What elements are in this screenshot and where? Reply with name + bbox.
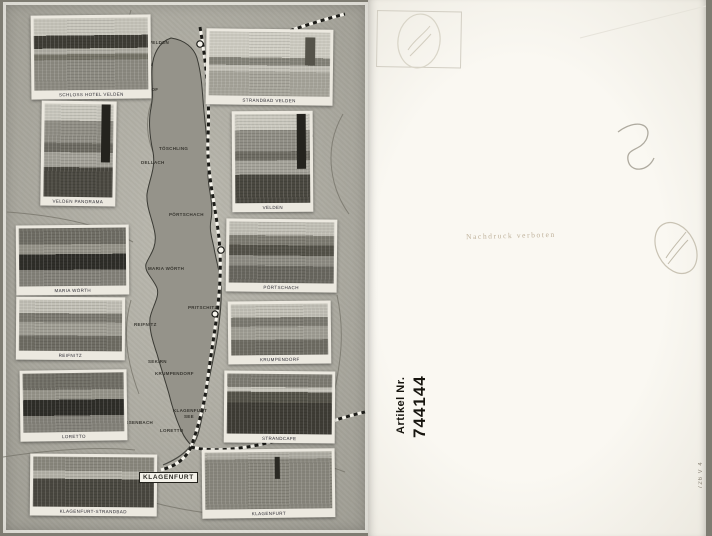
map-label-klagenfurt: KLAGENFURT xyxy=(139,472,198,483)
photo-vignette-klagenfurt-strandbad: KLAGENFURT-STRANDBAD xyxy=(30,453,158,516)
map-label-reifnitz: REIFNITZ xyxy=(134,322,157,327)
stamp-box xyxy=(377,11,462,68)
photo-image xyxy=(33,456,154,507)
photo-caption: VELDEN PANORAMA xyxy=(40,197,115,205)
photo-image xyxy=(231,303,329,355)
postcard-scan: VELDENAUENAUENHOFTÖSCHLINGDELLACHPÖRTSCH… xyxy=(0,0,712,536)
photo-image xyxy=(23,372,125,432)
pencil-mark xyxy=(618,124,654,169)
map-label-sekirn: SEKIRN xyxy=(148,359,167,364)
oval-hand-stamp xyxy=(647,215,706,281)
photo-vignette-velden-panorama: VELDEN PANORAMA xyxy=(40,100,116,206)
artikel-number: 744144 xyxy=(410,360,430,438)
photo-vignette-loretto: LORETTO xyxy=(20,369,128,441)
station-dot-velden xyxy=(197,41,203,47)
station-dot-krumpendorf xyxy=(212,311,218,317)
map-label-maria-wörth: MARIA WÖRTH xyxy=(148,266,184,271)
map-label-krumpendorf: KRUMPENDORF xyxy=(155,371,194,376)
photo-vignette-klagenfurt: KLAGENFURT xyxy=(202,448,336,519)
photo-vignette-pörtschach: PÖRTSCHACH xyxy=(226,218,338,292)
photo-image xyxy=(19,300,122,352)
photo-caption: PÖRTSCHACH xyxy=(226,283,337,291)
map-label-töschling: TÖSCHLING xyxy=(159,146,188,151)
publisher-logo-oval xyxy=(394,11,443,70)
artikel-nr-label: Artikel Nr. xyxy=(395,350,407,434)
photo-image xyxy=(19,228,127,287)
scratch-line xyxy=(580,6,706,38)
map-label-klagenfurt: KLAGENFURT xyxy=(173,408,207,413)
map-label-velden: VELDEN xyxy=(149,40,169,45)
photo-image xyxy=(235,114,311,204)
photo-vignette-velden: VELDEN xyxy=(232,111,314,213)
photo-image xyxy=(227,374,333,435)
photo-caption: STRANDCAFE xyxy=(224,435,335,443)
postcard-back: Nachdruck verboten Artikel Nr. 744144 72… xyxy=(368,0,706,536)
station-dot-poertschach xyxy=(218,247,224,253)
photo-image xyxy=(205,451,333,510)
map-label-pritschitz: PRITSCHITZ xyxy=(188,305,218,310)
photo-image xyxy=(34,17,149,90)
photo-vignette-krumpendorf: KRUMPENDORF xyxy=(228,300,332,364)
photo-caption: MARIA WÖRTH xyxy=(16,287,129,295)
photo-vignette-schloss-hotel-velden: SCHLOSS HOTEL VELDEN xyxy=(31,14,152,99)
back-marks xyxy=(368,0,706,536)
photo-vignette-reifnitz: REIFNITZ xyxy=(16,297,125,361)
photo-caption: VELDEN xyxy=(232,204,313,212)
photo-caption: LORETTO xyxy=(20,432,127,440)
photo-caption: KRUMPENDORF xyxy=(228,355,331,363)
map-label-dellach: DELLACH xyxy=(141,160,165,165)
photo-caption: KLAGENFURT xyxy=(202,509,335,518)
photo-image xyxy=(43,104,113,198)
photo-caption: KLAGENFURT-STRANDBAD xyxy=(30,507,157,515)
photo-caption: STRANDBAD VELDEN xyxy=(206,96,333,105)
photo-caption: REIFNITZ xyxy=(16,352,125,360)
map-label-pörtschach: PÖRTSCHACH xyxy=(169,212,204,217)
photo-image xyxy=(209,31,331,96)
edge-print-code: 726 V 4 xyxy=(698,437,704,489)
postcard-front: VELDENAUENAUENHOFTÖSCHLINGDELLACHPÖRTSCH… xyxy=(3,2,368,533)
photo-vignette-strandcafe: STRANDCAFE xyxy=(224,371,336,444)
photo-vignette-maria-wörth: MARIA WÖRTH xyxy=(16,225,130,296)
photo-image xyxy=(229,221,335,283)
map-label-loretto: LORETTO xyxy=(160,428,184,433)
photo-caption: SCHLOSS HOTEL VELDEN xyxy=(31,90,151,98)
photo-vignette-strandbad-velden: STRANDBAD VELDEN xyxy=(206,28,334,106)
map-label-see: SEE xyxy=(184,414,194,419)
